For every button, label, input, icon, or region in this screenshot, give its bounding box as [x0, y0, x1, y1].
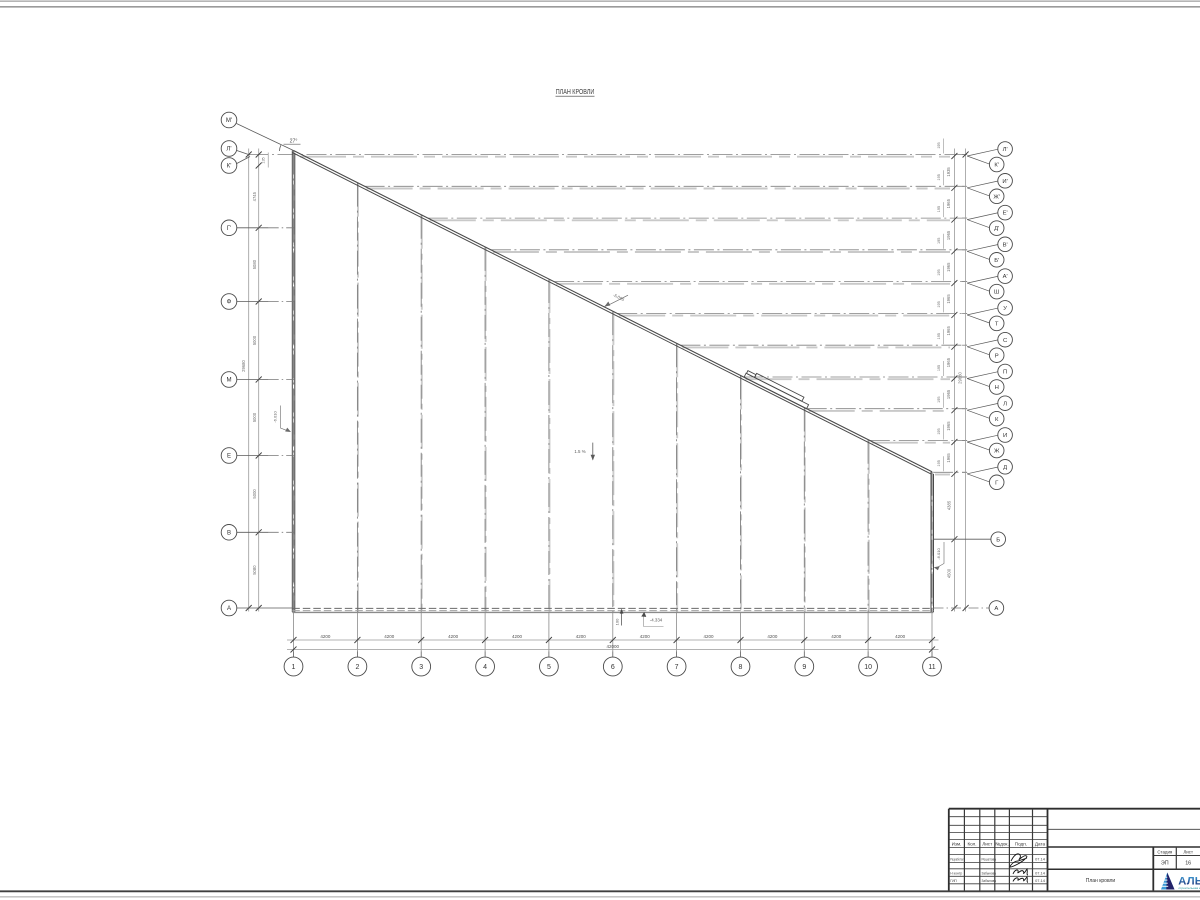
svg-text:07.14: 07.14 — [1035, 878, 1046, 883]
svg-text:195: 195 — [937, 269, 941, 275]
svg-text:Г': Г' — [227, 225, 231, 232]
svg-text:Д: Д — [1003, 465, 1007, 471]
svg-text:Р: Р — [995, 353, 999, 359]
svg-text:9: 9 — [802, 664, 806, 671]
svg-text:Изм.: Изм. — [952, 841, 962, 846]
svg-text:5: 5 — [547, 664, 551, 671]
svg-text:В': В' — [1003, 243, 1008, 249]
svg-text:Ж': Ж' — [993, 194, 1000, 200]
svg-text:5000: 5000 — [252, 489, 257, 499]
svg-text:Н контр: Н контр — [950, 871, 963, 876]
svg-text:Стадия: Стадия — [1157, 849, 1173, 854]
svg-text:4200: 4200 — [384, 634, 395, 639]
svg-text:А': А' — [1003, 274, 1008, 280]
svg-text:195: 195 — [937, 174, 941, 180]
svg-text:1935: 1935 — [946, 167, 951, 177]
svg-text:Д': Д' — [994, 226, 999, 232]
svg-text:К': К' — [227, 163, 232, 170]
svg-text:Е: Е — [227, 453, 231, 460]
svg-text:10: 10 — [864, 664, 872, 671]
svg-text:ГИП: ГИП — [950, 878, 957, 883]
svg-text:4500: 4500 — [947, 568, 952, 578]
svg-text:195: 195 — [937, 301, 941, 307]
svg-text:Дата: Дата — [1035, 841, 1046, 846]
svg-text:Л: Л — [1003, 401, 1007, 407]
svg-text:ПЛАН КРОВЛИ: ПЛАН КРОВЛИ — [556, 89, 595, 96]
svg-text:Забынова: Забынова — [982, 871, 997, 876]
svg-text:1.5 %: 1.5 % — [574, 449, 585, 454]
svg-text:16: 16 — [1185, 861, 1191, 867]
svg-text:№док.: №док. — [995, 841, 1008, 846]
svg-text:-6.010: -6.010 — [936, 548, 941, 560]
svg-text:1965: 1965 — [946, 357, 951, 367]
svg-text:195: 195 — [937, 142, 941, 148]
svg-text:Лист: Лист — [1183, 849, 1193, 854]
svg-text:11: 11 — [928, 664, 935, 671]
svg-text:строительная компания: строительная компания — [1179, 886, 1200, 890]
svg-text:100: 100 — [614, 618, 619, 625]
svg-text:1965: 1965 — [946, 294, 951, 304]
svg-text:1965: 1965 — [946, 230, 951, 240]
svg-text:М': М' — [226, 117, 232, 124]
svg-text:В: В — [227, 530, 231, 537]
svg-text:И': И' — [1002, 179, 1007, 185]
svg-text:4745: 4745 — [252, 191, 257, 201]
svg-text:42000: 42000 — [607, 644, 620, 649]
svg-text:4385: 4385 — [947, 500, 952, 510]
svg-text:Лист: Лист — [982, 841, 993, 846]
svg-text:29680: 29680 — [241, 360, 246, 372]
svg-text:Ш: Ш — [994, 290, 999, 296]
svg-text:Подп.: Подп. — [1015, 841, 1027, 846]
svg-text:Л': Л' — [1003, 147, 1008, 153]
svg-text:27°: 27° — [290, 139, 298, 145]
svg-text:195: 195 — [937, 206, 941, 212]
svg-text:План кровли: План кровли — [1086, 878, 1116, 884]
svg-text:Т: Т — [995, 322, 999, 328]
svg-text:Забынова: Забынова — [982, 878, 997, 883]
svg-text:4200: 4200 — [320, 634, 331, 639]
svg-text:М: М — [226, 377, 231, 384]
svg-text:Б: Б — [996, 537, 1000, 543]
svg-text:4200: 4200 — [512, 634, 523, 639]
svg-text:1965: 1965 — [946, 421, 951, 431]
svg-text:Кол.: Кол. — [967, 841, 976, 846]
svg-text:5080: 5080 — [252, 565, 257, 575]
svg-text:135: 135 — [262, 157, 266, 163]
svg-text:Разработал: Разработал — [950, 857, 964, 862]
svg-text:Решетова: Решетова — [982, 857, 997, 862]
svg-text:Л': Л' — [226, 146, 231, 153]
svg-text:2: 2 — [355, 664, 359, 671]
svg-text:4: 4 — [483, 664, 487, 671]
svg-text:4200: 4200 — [448, 634, 459, 639]
svg-text:7: 7 — [675, 664, 679, 671]
svg-text:Ж: Ж — [994, 449, 1000, 455]
svg-text:195: 195 — [937, 238, 941, 244]
svg-text:195: 195 — [937, 365, 941, 371]
svg-text:Е': Е' — [1003, 211, 1008, 217]
svg-text:195: 195 — [937, 397, 941, 403]
svg-text:К: К — [995, 417, 999, 423]
svg-text:4200: 4200 — [767, 634, 778, 639]
svg-text:07.14: 07.14 — [1035, 857, 1046, 862]
svg-text:195: 195 — [937, 333, 941, 339]
svg-text:1965: 1965 — [946, 262, 951, 272]
svg-text:6: 6 — [611, 664, 615, 671]
svg-text:-6.010: -6.010 — [273, 411, 278, 423]
svg-text:29680: 29680 — [958, 372, 963, 384]
svg-text:4200: 4200 — [703, 634, 714, 639]
svg-text:П: П — [1003, 370, 1007, 376]
svg-text:С: С — [1003, 338, 1008, 344]
svg-text:У: У — [1003, 306, 1007, 312]
svg-text:К': К' — [994, 163, 999, 169]
svg-text:А: А — [994, 606, 998, 612]
svg-text:3: 3 — [419, 664, 423, 671]
svg-text:1965: 1965 — [946, 325, 951, 335]
svg-text:ЭП: ЭП — [1161, 861, 1169, 867]
svg-text:195: 195 — [937, 460, 941, 466]
svg-text:1965: 1965 — [946, 389, 951, 399]
svg-text:Ф: Ф — [227, 299, 232, 306]
svg-text:4200: 4200 — [831, 634, 842, 639]
svg-text:4200: 4200 — [640, 634, 651, 639]
svg-text:5000: 5000 — [252, 335, 257, 345]
svg-text:5080: 5080 — [252, 259, 257, 269]
svg-text:Н: Н — [995, 385, 999, 391]
svg-text:1965: 1965 — [946, 198, 951, 208]
svg-text:4200: 4200 — [576, 634, 587, 639]
svg-text:8: 8 — [739, 664, 743, 671]
svg-text:5000: 5000 — [252, 412, 257, 422]
svg-text:07.14: 07.14 — [1035, 871, 1046, 876]
svg-text:Б': Б' — [994, 258, 999, 264]
svg-text:1: 1 — [292, 664, 296, 671]
svg-text:195: 195 — [937, 428, 941, 434]
svg-text:4200: 4200 — [895, 634, 906, 639]
svg-text:-4.334: -4.334 — [650, 618, 663, 623]
svg-text:1965: 1965 — [946, 453, 951, 463]
svg-text:И: И — [1003, 433, 1007, 439]
